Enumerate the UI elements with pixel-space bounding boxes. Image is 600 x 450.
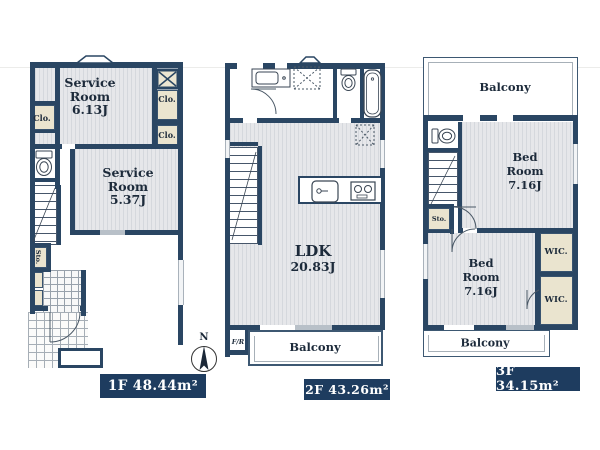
- floor2-plan: LDK 20.83J Balcony F/R: [223, 54, 390, 404]
- stairs-direction-line: [232, 152, 256, 240]
- toilet-icon: [341, 69, 356, 91]
- bedroom-2-label: Bed Room 7.16J: [462, 256, 499, 298]
- bay-window-icon: [77, 56, 113, 63]
- closet-label: Clo.: [158, 130, 175, 140]
- kitchen-sink-icon: [312, 181, 338, 202]
- balcony-label: Balcony: [289, 340, 340, 354]
- bedroom-1-label: Bed Room 7.16J: [506, 150, 543, 192]
- room-name-line: Service: [64, 76, 115, 90]
- storage-label: Sto.: [34, 250, 42, 264]
- entrance-door-arc: [50, 312, 80, 342]
- bay-window-icon: [300, 57, 320, 63]
- ldk-label: LDK 20.83J: [290, 243, 335, 275]
- compass-needle: [200, 346, 209, 370]
- room-area-line: 7.16J: [462, 284, 499, 298]
- toilet-icon: [36, 151, 52, 176]
- room-area-line: 20.83J: [290, 259, 335, 275]
- balcony-label: Balcony: [479, 80, 530, 94]
- wic-label: WIC.: [544, 295, 567, 305]
- room-area-line: 5.37J: [102, 193, 153, 207]
- room-name-line: LDK: [290, 243, 335, 259]
- compass-north-label: N: [199, 332, 208, 343]
- stairs-direction-line: [33, 188, 55, 242]
- wic-door-arc: [527, 290, 539, 309]
- floor1-plan: Service Room 6.13J Service Room 5.37J Cl…: [28, 54, 186, 374]
- closet-label: Clo.: [33, 113, 50, 123]
- bathtub-icon: [364, 70, 381, 117]
- bedroom-door-arc: [452, 229, 475, 252]
- floor3-area-badge: 3F 34.15m²: [496, 367, 580, 391]
- toilet-icon: [432, 129, 455, 143]
- room-name-line: Room: [102, 179, 153, 193]
- hall-door-arc: [454, 207, 476, 229]
- north-compass-icon: N: [187, 328, 221, 382]
- room-area-line: 6.13J: [64, 103, 115, 117]
- room-area-line: 7.16J: [506, 178, 543, 192]
- balcony-label: Balcony: [460, 337, 509, 350]
- room-name-line: Bed: [462, 256, 499, 270]
- washroom-door-arc: [251, 89, 276, 114]
- refrigerator-space-icon: [356, 125, 374, 145]
- wic-label: WIC.: [544, 247, 567, 257]
- closet-label: Clo.: [158, 94, 175, 104]
- floorplan-sheet: Service Room 6.13J Service Room 5.37J Cl…: [0, 0, 600, 450]
- room-name-line: Room: [64, 89, 115, 103]
- refrigerator-label: F/R: [232, 338, 244, 346]
- room-name-line: Bed: [506, 150, 543, 164]
- washbasin-icon: [252, 69, 290, 87]
- service-room-1-label: Service Room 6.13J: [64, 76, 115, 117]
- pipe-space-icon: [157, 70, 178, 88]
- floor2-area-badge: 2F 43.26m²: [304, 379, 390, 400]
- washing-machine-pan-icon: [294, 67, 320, 89]
- service-room-2-label: Service Room 5.37J: [102, 166, 153, 207]
- room-name-line: Room: [462, 270, 499, 284]
- room-name-line: Room: [506, 164, 543, 178]
- stairs-direction-line: [431, 156, 455, 204]
- floor3-plan: Balcony Bed Room 7.16J Bed Room 7.16J WI…: [421, 54, 581, 399]
- room-name-line: Service: [102, 166, 153, 180]
- stove-icon: [351, 182, 375, 200]
- storage-label: Sto.: [432, 215, 446, 223]
